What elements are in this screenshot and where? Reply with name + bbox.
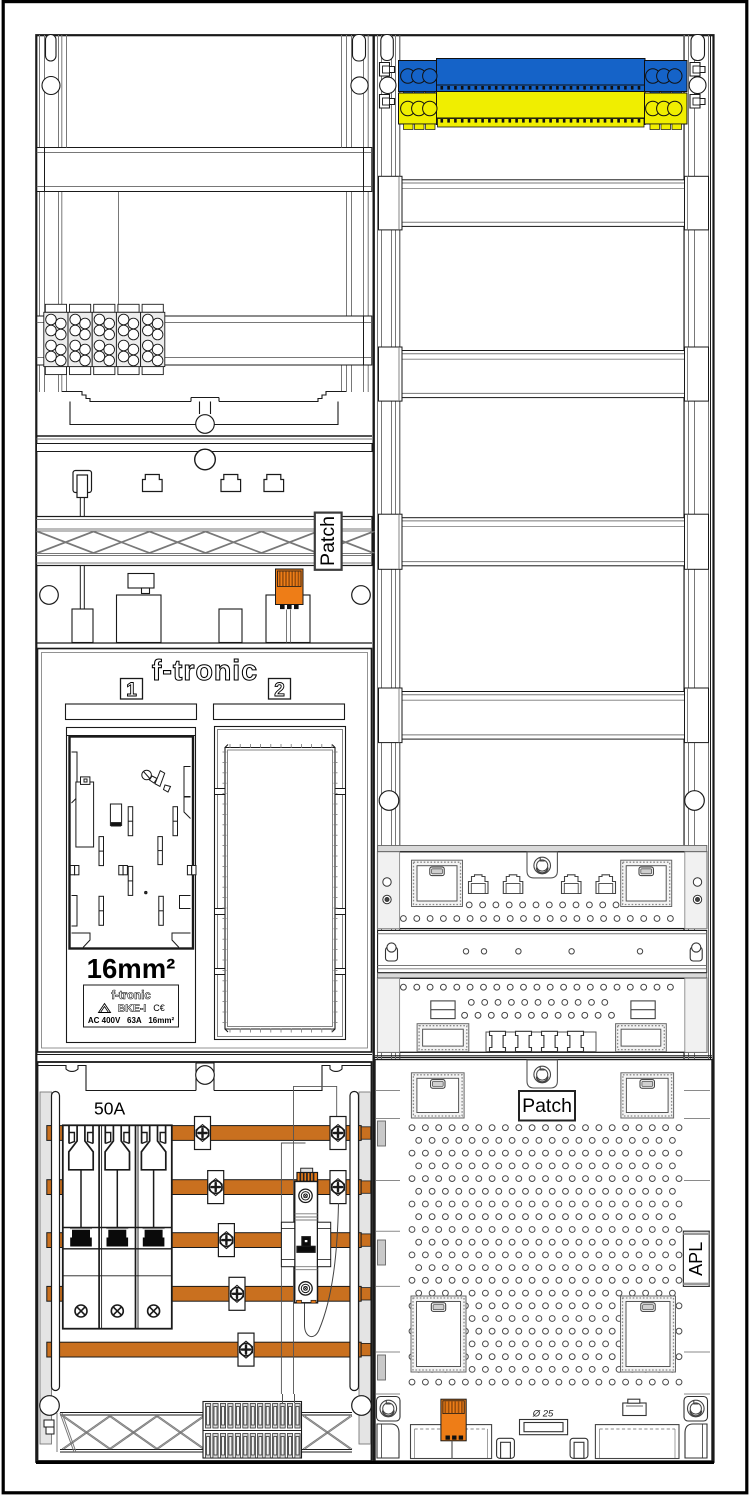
svg-text:f-tronic: f-tronic [152,655,258,687]
svg-text:f-tronic: f-tronic [111,990,151,1002]
svg-text:AC 400V 63A 16mm²: AC 400V 63A 16mm² [88,1016,175,1025]
svg-text:APL: APL [686,1242,706,1276]
svg-text:1: 1 [126,680,137,701]
svg-text:Patch: Patch [522,1095,572,1117]
svg-text:16mm²: 16mm² [87,953,176,984]
svg-text:C€: C€ [153,1003,165,1013]
svg-text:50A: 50A [94,1099,125,1119]
svg-text:Patch: Patch [317,516,339,566]
svg-text:BKE-I: BKE-I [118,1003,147,1015]
svg-text:Ø 25: Ø 25 [532,1409,554,1420]
svg-text:2: 2 [274,680,285,701]
